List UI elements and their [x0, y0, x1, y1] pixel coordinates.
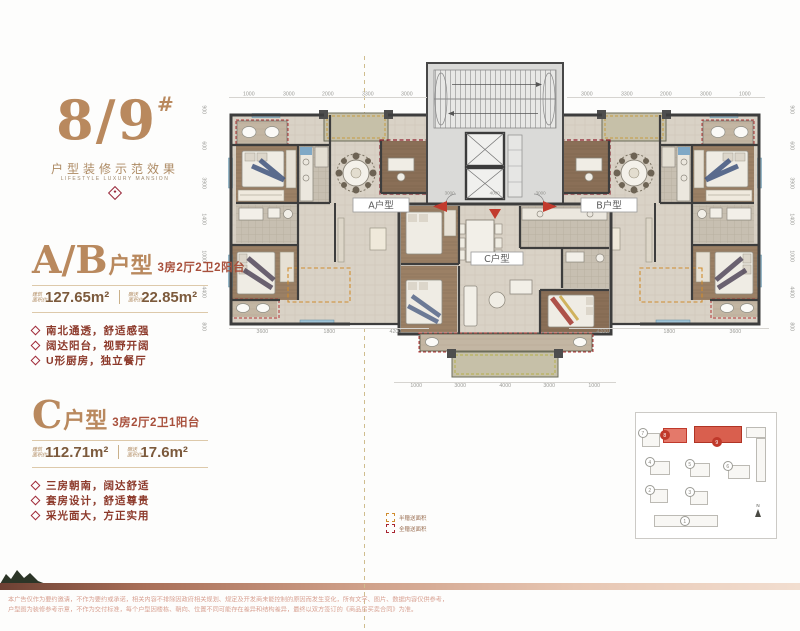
dim-value: 3000 [577, 91, 598, 97]
subtitle-cn: 户型装修示范效果 [0, 160, 230, 177]
dim-value: 600 [789, 142, 795, 148]
dims-bottom-center: 10003000400030001000 [394, 382, 616, 395]
legend-label: 全赠送面积 [399, 524, 427, 532]
unit-ab-suffix: 户型 [108, 248, 152, 280]
building-2-number: 2 [645, 485, 655, 495]
left-info-panel: 8/9# 户型装修示范效果 LIFESTYLE LUXURY MANSION A… [0, 0, 230, 560]
north-label: N [755, 505, 760, 507]
diamond-bullet-icon [31, 496, 41, 506]
unit-c-spec: 3房2厅2卫1阳台 [112, 414, 200, 430]
dim-value: 3000 [278, 91, 299, 97]
building-number-hash: # [157, 92, 174, 116]
legend-label: 半赠送面积 [399, 513, 427, 521]
unit-c-areas: 建筑面积约 112.71m² 赠送面积约 17.6m² [32, 442, 210, 462]
dim-value: 3000 [695, 91, 716, 97]
divider [32, 467, 208, 468]
building-block [756, 438, 766, 482]
dim-value: 3300 [616, 91, 637, 97]
divider [32, 285, 208, 286]
divider [118, 445, 119, 459]
dims-top-left: 10003000200033003000 [229, 85, 427, 98]
feature-item: 三房朝南，阔达舒适 [32, 478, 210, 493]
unit-ab-section: A/B 户型 3房2厅2卫2阳台 建筑面积约 127.65m² 赠送面积约 22… [32, 241, 210, 368]
divider [119, 290, 120, 304]
legend-item: 半赠送面积 [386, 512, 449, 523]
full-gift-swatch-icon [386, 524, 395, 533]
dim-value: 1000 [789, 250, 795, 256]
area-label: 建筑面积约 [32, 447, 39, 458]
dim-value: 3600 [245, 329, 280, 335]
building-number: 8/9 [56, 88, 157, 152]
dim-value: 3000 [439, 191, 459, 195]
floor-plan: A户型 B户型 C户型 [200, 52, 800, 410]
dims-left-column: 9006003900140010004400800 [198, 103, 210, 331]
diamond-bullet-icon [31, 341, 41, 351]
dim-value: 1000 [735, 91, 756, 97]
disclaimer-line-1: 本广告仅作为要约邀请，不作为要约或承诺，相关内容不排除因政府相关规划、规定及开发… [8, 594, 628, 603]
dim-value: 4000 [485, 191, 505, 195]
unit-c-features: 三房朝南，阔达舒适 套房设计，舒适尊贵 采光面大，方正实用 [32, 478, 210, 523]
building-1-number: 1 [680, 516, 690, 526]
dim-value: 3000 [530, 191, 550, 195]
dim-value: 1000 [201, 250, 207, 256]
gift-area-value: 22.85m² [141, 289, 197, 306]
subtitle-en: LIFESTYLE LUXURY MANSION [58, 176, 173, 182]
dim-value: 900 [789, 105, 795, 111]
diamond-bullet-icon [31, 326, 41, 336]
area-label: 建筑面积约 [32, 292, 39, 303]
dim-value: 1400 [789, 214, 795, 220]
dim-value: 4400 [789, 286, 795, 292]
dim-value: 3900 [201, 178, 207, 184]
unit-c-plan [399, 204, 611, 377]
dim-value: 1400 [201, 214, 207, 220]
diamond-bullet-icon [31, 481, 41, 491]
feature-item: 套房设计，舒适尊贵 [32, 493, 210, 508]
dim-value: 900 [201, 105, 207, 111]
legend-item: 全赠送面积 [386, 523, 449, 534]
dim-value: 1800 [652, 329, 687, 335]
dim-value: 4400 [201, 286, 207, 292]
disclaimer-line-2: 户型图为装修参考示意，不作为交付标准，每个户型因楼栋、朝向、位置不同可能存在差异… [8, 604, 628, 613]
dim-value: 3300 [357, 91, 378, 97]
dim-value: 2000 [318, 91, 339, 97]
unit-c-label: C户型 [484, 253, 510, 265]
divider [32, 312, 208, 313]
half-gift-swatch-icon [386, 513, 395, 522]
dim-value: 3000 [538, 383, 561, 389]
dim-value: 2000 [656, 91, 677, 97]
area-label: 赠送面积约 [128, 292, 135, 303]
building-7-number: 7 [638, 428, 648, 438]
unit-ab-heading: A/B 户型 3房2厅2卫2阳台 [32, 241, 210, 280]
brochure-page: 8/9# 户型装修示范效果 LIFESTYLE LUXURY MANSION A… [0, 0, 800, 631]
dim-value: 600 [201, 142, 207, 148]
dim-value: 4000 [493, 383, 516, 389]
gift-area-value: 17.6m² [140, 444, 188, 461]
dim-value: 3000 [449, 383, 472, 389]
dim-value: 800 [201, 322, 207, 328]
dims-core-bottom: 300040003000 [427, 191, 563, 199]
unit-c-name: C [32, 396, 62, 434]
dim-value: 3600 [718, 329, 753, 335]
dim-value: 4200 [378, 329, 413, 335]
unit-ab-areas: 建筑面积约 127.65m² 赠送面积约 22.85m² [32, 287, 210, 307]
building-number-title: 8/9# [0, 88, 230, 152]
copper-gradient-bar [0, 583, 800, 590]
dims-bottom-left: 360018004200 [229, 328, 429, 341]
unit-c-suffix: 户型 [63, 403, 107, 435]
dim-value: 3000 [397, 91, 418, 97]
built-area-value: 127.65m² [45, 289, 109, 306]
feature-item: 南北通透，舒适感强 [32, 323, 210, 338]
dim-value: 800 [789, 322, 795, 328]
building-3-number: 3 [685, 487, 695, 497]
elevator-core [427, 63, 563, 204]
unit-a-label: A户型 [368, 200, 394, 212]
building-block [746, 427, 766, 438]
dim-value: 1000 [582, 383, 605, 389]
diamond-bullet-icon [31, 356, 41, 366]
building-6-number: 6 [723, 461, 733, 471]
dim-value: 1800 [312, 329, 347, 335]
unit-ab-name: A/B [32, 241, 107, 279]
building-9-number: 9 [712, 437, 722, 447]
dim-value: 1000 [405, 383, 428, 389]
divider [32, 440, 208, 441]
diamond-ornament-icon [108, 186, 122, 200]
unit-b-label: B户型 [596, 200, 622, 212]
dims-right-column: 9006003900140010004400800 [786, 103, 798, 331]
mountain-silhouette-icon [0, 568, 46, 584]
feature-item: 阔达阳台，视野开阔 [32, 338, 210, 353]
gift-area-legend: 半赠送面积 全赠送面积 [386, 512, 449, 534]
dims-top-right: 30003300200030001000 [567, 85, 765, 98]
dim-value: 4200 [585, 329, 620, 335]
unit-c-heading: C 户型 3房2厅2卫1阳台 [32, 396, 210, 435]
dim-value: 1000 [239, 91, 260, 97]
dim-value: 3900 [789, 178, 795, 184]
building-8-number: 8 [660, 430, 670, 440]
feature-item: 采光面大，方正实用 [32, 508, 210, 523]
dims-bottom-right: 420018003600 [569, 328, 769, 341]
north-arrow-icon: N [752, 505, 764, 517]
area-label: 赠送面积约 [127, 447, 134, 458]
built-area-value: 112.71m² [45, 444, 108, 461]
unit-c-section: C 户型 3房2厅2卫1阳台 建筑面积约 112.71m² 赠送面积约 17.6… [32, 396, 210, 523]
feature-item: U形厨房，独立餐厅 [32, 353, 210, 368]
building-5-number: 5 [685, 459, 695, 469]
site-key-plan: 7 8 9 4 5 6 2 3 1 N [635, 412, 777, 539]
unit-ab-features: 南北通透，舒适感强 阔达阳台，视野开阔 U形厨房，独立餐厅 [32, 323, 210, 368]
diamond-bullet-icon [31, 511, 41, 521]
building-4-number: 4 [645, 457, 655, 467]
